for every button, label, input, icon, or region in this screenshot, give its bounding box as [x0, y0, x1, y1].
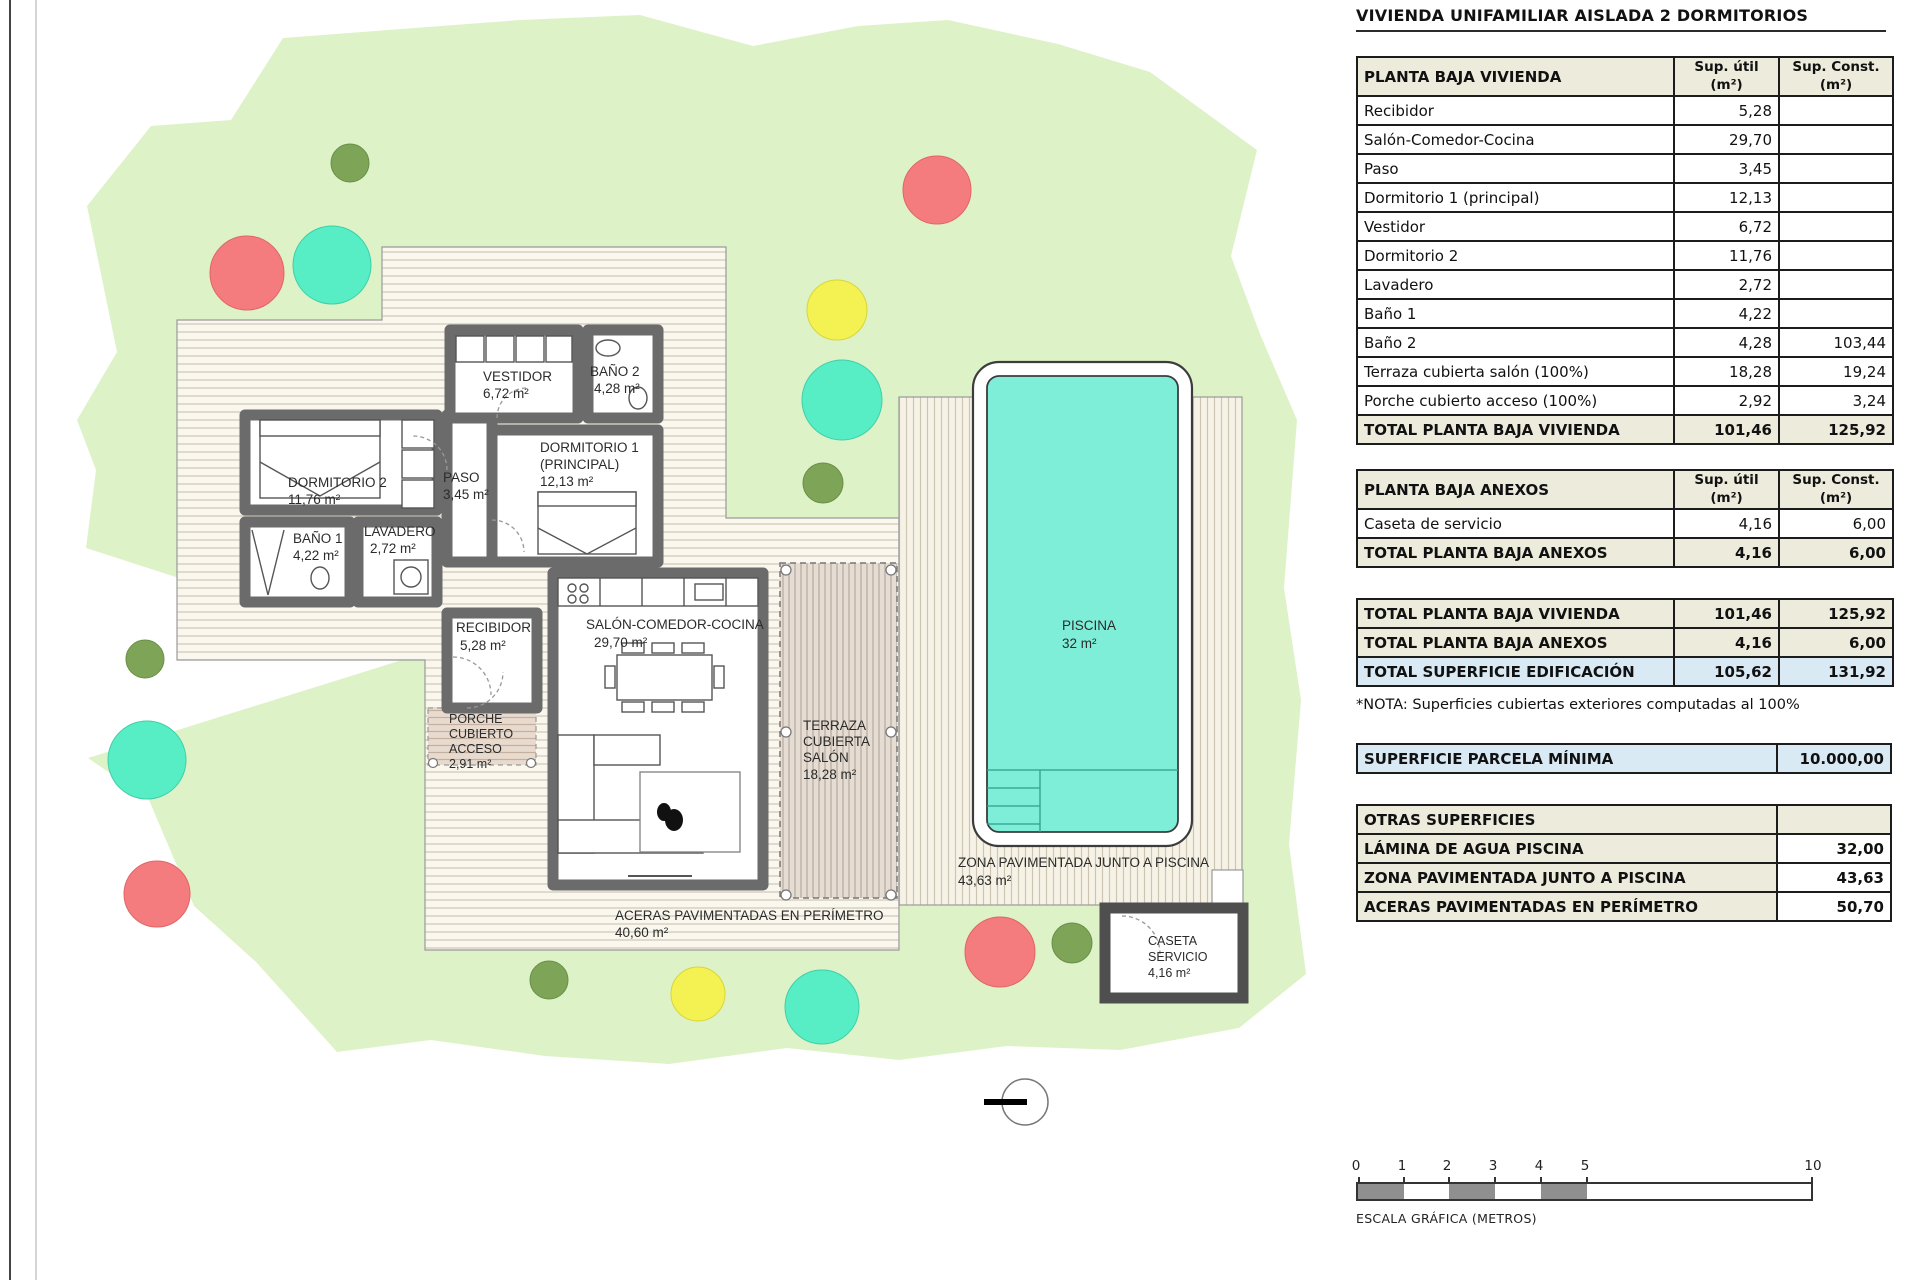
table-row: Paso3,45 — [1357, 154, 1893, 183]
table-header-row: OTRAS SUPERFICIES — [1357, 805, 1891, 834]
graphic-scale: 0 1 2 3 4 5 10 ESCALA GRÁFICA (METROS) — [1356, 1158, 1826, 1226]
svg-text:29,70 m²: 29,70 m² — [594, 635, 648, 650]
svg-text:4,22 m²: 4,22 m² — [293, 548, 339, 563]
svg-text:SALÓN: SALÓN — [803, 750, 849, 765]
table-total-row: TOTAL PLANTA BAJA VIVIENDA101,46125,92 — [1357, 415, 1893, 444]
label-paso: PASO — [443, 470, 480, 485]
svg-text:3,45 m²: 3,45 m² — [443, 487, 489, 502]
service-hut-notch — [1212, 870, 1243, 907]
label-dormitorio2: DORMITORIO 2 — [288, 475, 387, 490]
tree-teal — [108, 721, 186, 799]
tree-teal — [785, 970, 859, 1044]
svg-text:6,72 m²: 6,72 m² — [483, 386, 529, 401]
svg-text:(PRINCIPAL): (PRINCIPAL) — [540, 457, 619, 472]
table-row: Caseta de servicio4,166,00 — [1357, 509, 1893, 538]
svg-text:ACCESO: ACCESO — [449, 742, 502, 756]
label-salon: SALÓN-COMEDOR-COCINA — [586, 617, 764, 632]
tree-olive — [126, 640, 164, 678]
table-row: Vestidor6,72 — [1357, 212, 1893, 241]
table-row: LÁMINA DE AGUA PISCINA32,00 — [1357, 834, 1891, 863]
tree-red — [903, 156, 971, 224]
table-row: Dormitorio 1 (principal)12,13 — [1357, 183, 1893, 212]
table-row: Recibidor5,28 — [1357, 96, 1893, 125]
tree-olive — [530, 961, 568, 999]
tree-red — [965, 917, 1035, 987]
tree-red — [124, 861, 190, 927]
tree-olive — [331, 144, 369, 182]
table-total-row: TOTAL PLANTA BAJA ANEXOS4,166,00 — [1357, 538, 1893, 567]
svg-text:12,13 m²: 12,13 m² — [540, 474, 594, 489]
scale-numbers: 0 1 2 3 4 5 10 — [1356, 1158, 1826, 1176]
table-total-row: TOTAL PLANTA BAJA ANEXOS4,166,00 — [1357, 628, 1893, 657]
swimming-pool — [973, 362, 1192, 846]
table-row: Salón-Comedor-Cocina29,70 — [1357, 125, 1893, 154]
svg-text:4,16 m²: 4,16 m² — [1148, 966, 1190, 980]
areas-summary-panel: VIVIENDA UNIFAMILIAR AISLADA 2 DORMITORI… — [1345, 0, 1920, 1280]
table-row: Porche cubierto acceso (100%)2,923,24 — [1357, 386, 1893, 415]
svg-text:11,76 m²: 11,76 m² — [288, 492, 341, 507]
table-row: Lavadero2,72 — [1357, 270, 1893, 299]
label-porche: PORCHE — [449, 712, 502, 726]
svg-text:4,28 m²: 4,28 m² — [594, 381, 640, 396]
svg-text:2,72 m²: 2,72 m² — [370, 541, 416, 556]
label-terraza: TERRAZA — [803, 718, 866, 733]
tree-teal — [293, 226, 371, 304]
tree-yellow — [671, 967, 725, 1021]
site-plan-sheet: DORMITORIO 2 11,76 m² BAÑO 1 4,22 m² LAV… — [0, 0, 1920, 1280]
sheet-title: VIVIENDA UNIFAMILIAR AISLADA 2 DORMITORI… — [1356, 6, 1886, 32]
tree-olive — [803, 463, 843, 503]
floor-plan-drawing: DORMITORIO 2 11,76 m² BAÑO 1 4,22 m² LAV… — [0, 0, 1345, 1280]
label-bano2: BAÑO 2 — [590, 364, 640, 379]
tree-yellow — [807, 280, 867, 340]
table-row: ACERAS PAVIMENTADAS EN PERÍMETRO50,70 — [1357, 892, 1891, 921]
table-row: Dormitorio 211,76 — [1357, 241, 1893, 270]
label-piscina: PISCINA — [1062, 618, 1116, 633]
tree-red — [210, 236, 284, 310]
table-header: PLANTA BAJA VIVIENDA — [1357, 57, 1674, 96]
label-aceras: ACERAS PAVIMENTADAS EN PERÍMETRO — [615, 908, 884, 923]
access-marker-symbol — [984, 1079, 1048, 1125]
table-totales: TOTAL PLANTA BAJA VIVIENDA101,46125,92 T… — [1356, 598, 1894, 687]
svg-text:CUBIERTA: CUBIERTA — [803, 734, 870, 749]
svg-text:18,28 m²: 18,28 m² — [803, 767, 857, 782]
table-planta-baja-anexos: PLANTA BAJA ANEXOS Sup. útil(m²) Sup. Co… — [1356, 469, 1894, 568]
tree-teal — [802, 360, 882, 440]
tree-olive — [1052, 923, 1092, 963]
table-planta-baja-vivienda: PLANTA BAJA VIVIENDA Sup. útil(m²) Sup. … — [1356, 56, 1894, 445]
label-vestidor: VESTIDOR — [483, 369, 552, 384]
label-recibidor: RECIBIDOR — [456, 620, 531, 635]
table-row: Terraza cubierta salón (100%)18,2819,24 — [1357, 357, 1893, 386]
table-otras-superficies: OTRAS SUPERFICIES LÁMINA DE AGUA PISCINA… — [1356, 804, 1892, 922]
label-caseta: CASETA — [1148, 934, 1198, 948]
nota-text: *NOTA: Superficies cubiertas exteriores … — [1356, 697, 1920, 713]
svg-text:5,28 m²: 5,28 m² — [460, 638, 506, 653]
svg-text:CUBIERTO: CUBIERTO — [449, 727, 513, 741]
table-row: ZONA PAVIMENTADA JUNTO A PISCINA43,63 — [1357, 863, 1891, 892]
label-dormitorio1: DORMITORIO 1 — [540, 440, 639, 455]
svg-text:40,60 m²: 40,60 m² — [615, 925, 669, 940]
svg-text:32 m²: 32 m² — [1062, 636, 1097, 651]
table-header: PLANTA BAJA ANEXOS — [1357, 470, 1674, 509]
table-total-row: TOTAL PLANTA BAJA VIVIENDA101,46125,92 — [1357, 599, 1893, 628]
table-grand-total-row: TOTAL SUPERFICIE EDIFICACIÓN105,62131,92 — [1357, 657, 1893, 686]
table-parcela-minima: SUPERFICIE PARCELA MÍNIMA 10.000,00 — [1356, 743, 1892, 774]
table-row: Baño 14,22 — [1357, 299, 1893, 328]
label-bano1: BAÑO 1 — [293, 531, 343, 546]
table-row: SUPERFICIE PARCELA MÍNIMA 10.000,00 — [1357, 744, 1891, 773]
svg-text:SERVICIO: SERVICIO — [1148, 950, 1208, 964]
label-lavadero: LAVADERO — [364, 524, 436, 539]
label-zona-pavimentada: ZONA PAVIMENTADA JUNTO A PISCINA — [958, 855, 1209, 870]
svg-text:43,63 m²: 43,63 m² — [958, 873, 1012, 888]
table-row: Baño 24,28103,44 — [1357, 328, 1893, 357]
scale-bar — [1356, 1182, 1813, 1201]
scale-caption: ESCALA GRÁFICA (METROS) — [1356, 1211, 1826, 1226]
svg-text:2,91 m²: 2,91 m² — [449, 757, 491, 771]
